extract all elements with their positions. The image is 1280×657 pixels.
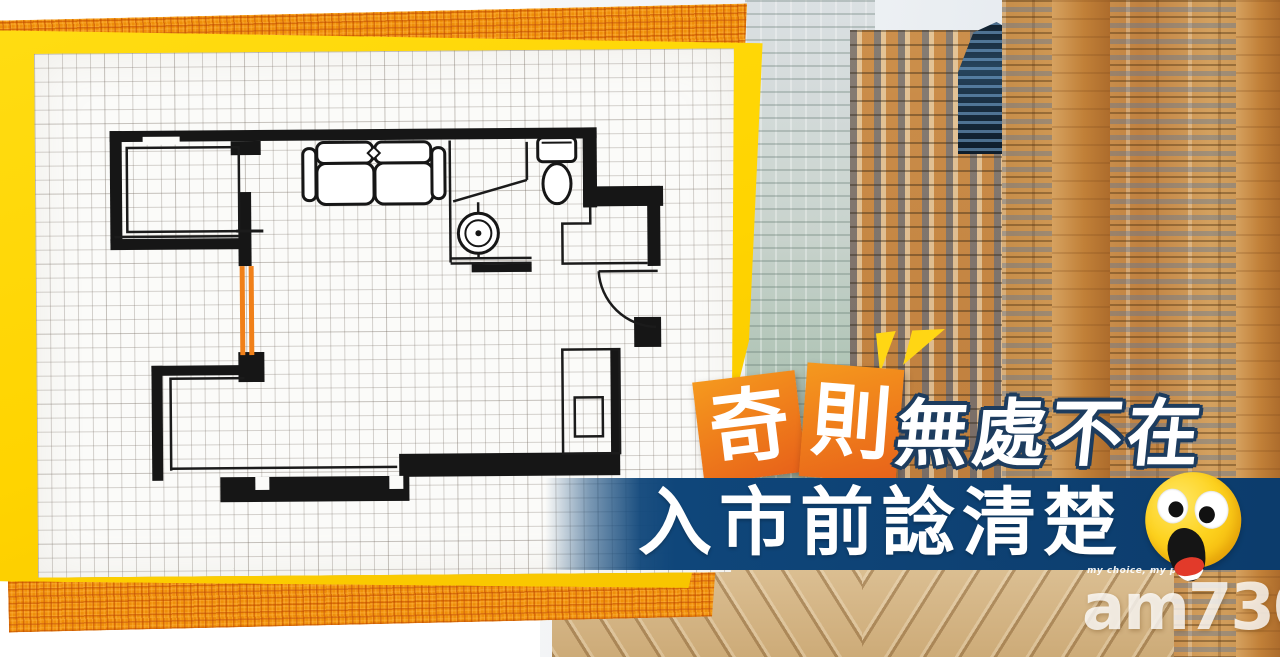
bathroom-door-leaf [472, 264, 532, 272]
emoji-right-pupil [1198, 506, 1215, 524]
headline-line2: 入市前諗清楚 [638, 486, 1124, 560]
news-graphic: 奇 則 無處不在 入市前諗清楚 my choice, my paper am73… [0, 0, 1280, 657]
headline-badge-2: 則 [799, 362, 905, 483]
toilet [538, 138, 577, 204]
emoji-left-pupil [1168, 501, 1184, 518]
sofa [303, 142, 445, 205]
headline-badge-2-char: 則 [808, 380, 894, 466]
shocked-emoji-icon [1142, 469, 1250, 594]
highlighted-wall [240, 266, 255, 355]
wash-basin [458, 213, 498, 253]
headline-badge-1-char: 奇 [705, 382, 794, 471]
headline-badge-1: 奇 [692, 370, 807, 484]
headline-line1: 無處不在 [892, 398, 1208, 471]
